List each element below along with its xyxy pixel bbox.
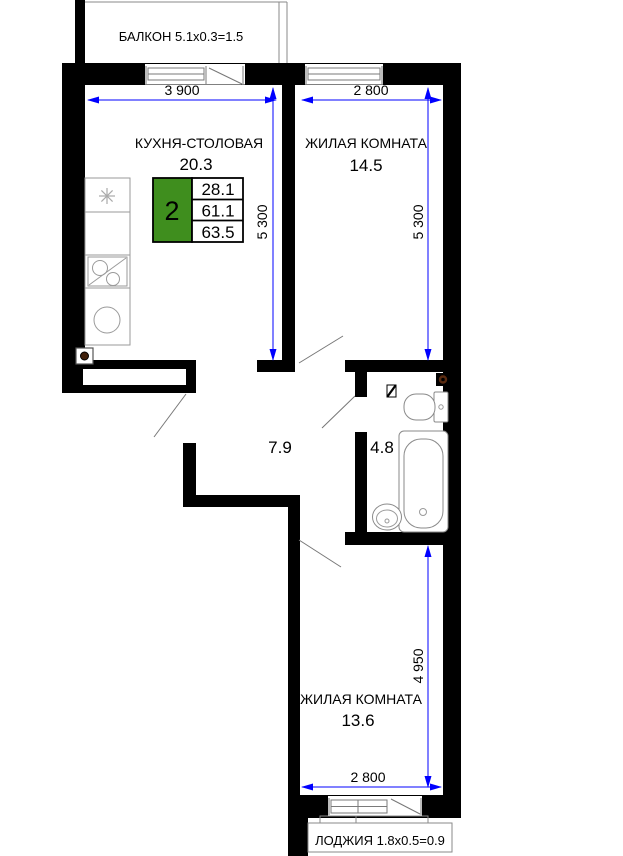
badge-room-count: 2 [164,196,179,226]
living-bottom-door-swing [299,540,341,567]
floor-plan-drawing: БАЛКОН 5.1x0.3=1.5 [0,0,623,856]
wall-top [62,63,461,85]
bathroom-door-swing [322,396,355,428]
kitchen-sink-icon [88,257,127,286]
dim-living-bottom-width: 2 800 [350,769,385,785]
living-bottom-area: 13.6 [341,711,374,730]
dim-kitchen-depth: 5 300 [254,204,270,239]
floor-plan-canvas: БАЛКОН 5.1x0.3=1.5 [0,0,623,856]
living-bottom-name: ЖИЛАЯ КОМНАТА [300,691,423,707]
arrow-icon [87,97,99,104]
wall-balcony-left [75,0,85,64]
wall-bathroom-west-lower [355,432,367,545]
dim-living-top-depth: 5 300 [410,204,426,239]
wall-left [62,63,85,393]
arrow-icon [301,784,313,791]
walls [62,0,461,856]
apartment-info-badge: 2 28.1 61.1 63.5 [153,178,243,242]
arrow-icon [425,545,432,557]
kitchen-name: КУХНЯ-СТОЛОВАЯ [135,135,263,151]
kitchen-area: 20.3 [179,155,212,174]
arrow-icon [270,87,277,99]
dimensions: 3 900 5 300 2 800 5 300 4 950 2 800 [87,82,442,791]
vent-shaft-icon [387,385,396,397]
dim-living-bottom-depth: 4 950 [410,648,426,683]
dim-kitchen-width: 3 900 [164,82,199,98]
arrow-icon [430,784,442,791]
living-top-area: 14.5 [349,156,382,175]
loggia-label: ЛОДЖИЯ 1.8x0.5=0.9 [315,833,445,848]
wall-loggia-left [288,818,308,856]
kitchen-wall-niche [83,369,186,385]
wall-living-bottom-west [288,495,300,805]
corner-marker-icon [436,373,450,386]
wall-hall-south [183,495,300,507]
badge-area-without-balcony: 61.1 [201,202,234,221]
bathtub-icon [399,431,448,532]
wall-divider-foot [257,360,295,372]
badge-total-area: 63.5 [201,223,234,242]
arrow-icon [425,349,432,361]
entrance-door-swing [154,394,186,437]
wall-bathroom-top [345,360,455,372]
wall-kitchen-living-divider [282,85,295,372]
wall-bathroom-bottom [345,532,455,545]
wall-bathroom-west-upper [355,372,367,397]
kitchen-corner-block [76,348,93,364]
living-top-door-swing [299,336,343,363]
loggia-outline: ЛОДЖИЯ 1.8x0.5=0.9 [308,816,452,852]
vent-star-icon [99,188,115,204]
living-top-name: ЖИЛАЯ КОМНАТА [305,135,428,151]
washbasin-icon [373,504,402,530]
toilet-icon [404,392,448,422]
arrow-icon [425,87,432,99]
bathroom-area: 4.8 [370,438,394,457]
badge-living-area: 28.1 [201,180,234,199]
hallway-area: 7.9 [268,438,292,457]
dim-living-top-width: 2 800 [353,82,388,98]
balcony-outline: БАЛКОН 5.1x0.3=1.5 [75,2,287,63]
balcony-label: БАЛКОН 5.1x0.3=1.5 [119,29,244,44]
arrow-icon [430,97,442,104]
arrow-icon [270,349,277,361]
stove-icon [94,307,120,333]
arrow-icon [301,97,313,104]
